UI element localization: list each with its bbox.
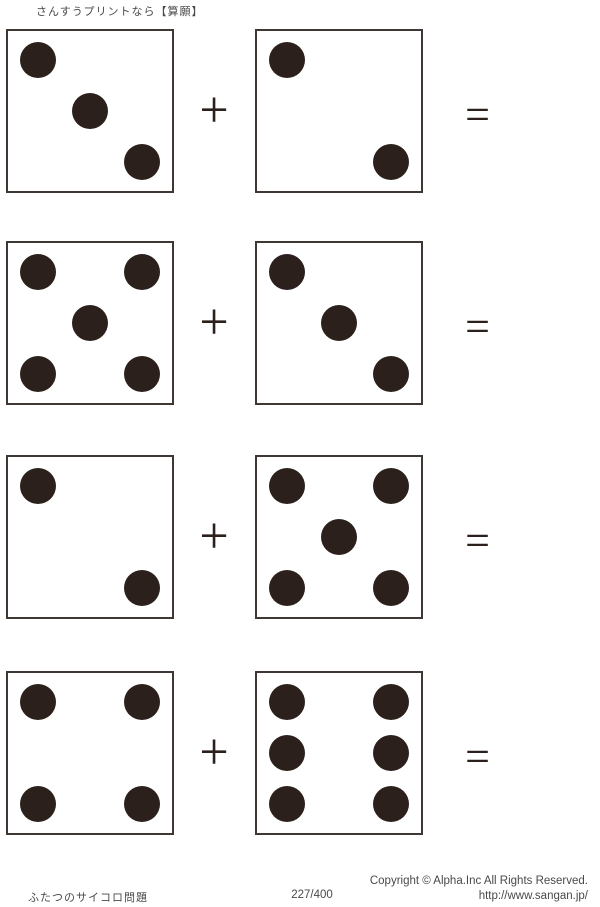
die-pip [20, 786, 56, 822]
die-pip [72, 305, 108, 341]
die-pip [124, 570, 160, 606]
worksheet-page: さんすうプリントなら【算願】 + = + = + = + = ふたつのサイコロ問… [0, 0, 600, 907]
die-pip [373, 684, 409, 720]
die-pip [20, 356, 56, 392]
die-right [255, 29, 423, 193]
die-pip [269, 570, 305, 606]
die-pip [373, 570, 409, 606]
problem-row-3: + = [0, 455, 600, 619]
die-pip [373, 735, 409, 771]
die-pip [124, 356, 160, 392]
die-pip [20, 684, 56, 720]
equals-icon: = [452, 455, 503, 619]
site-url: http://www.sangan.jp/ [370, 889, 588, 904]
die-pip [20, 42, 56, 78]
die-left [6, 241, 174, 405]
die-pip [124, 786, 160, 822]
die-pip [269, 42, 305, 78]
die-left [6, 671, 174, 835]
copyright-text: Copyright © Alpha.Inc All Rights Reserve… [370, 874, 588, 889]
die-pip [269, 735, 305, 771]
problem-row-1: + = [0, 29, 600, 193]
die-pip [124, 684, 160, 720]
die-pip [269, 468, 305, 504]
die-pip [373, 786, 409, 822]
die-pip [373, 144, 409, 180]
die-pip [20, 254, 56, 290]
footer-worksheet-title: ふたつのサイコロ問題 [28, 889, 148, 905]
die-pip [373, 356, 409, 392]
die-pip [269, 684, 305, 720]
die-pip [124, 254, 160, 290]
equals-icon: = [452, 29, 503, 193]
die-right [255, 241, 423, 405]
page-title: さんすうプリントなら【算願】 [36, 3, 204, 19]
equals-icon: = [452, 671, 503, 835]
page-number: 227/400 [267, 889, 357, 901]
die-pip [321, 305, 357, 341]
plus-icon: + [189, 455, 239, 619]
die-pip [321, 519, 357, 555]
die-pip [124, 144, 160, 180]
problem-row-2: + = [0, 241, 600, 405]
copyright-block: Copyright © Alpha.Inc All Rights Reserve… [370, 874, 588, 903]
problem-row-4: + = [0, 671, 600, 835]
die-pip [269, 254, 305, 290]
die-pip [20, 468, 56, 504]
die-left [6, 455, 174, 619]
die-left [6, 29, 174, 193]
die-pip [269, 786, 305, 822]
plus-icon: + [189, 29, 239, 193]
plus-icon: + [189, 671, 239, 835]
die-pip [373, 468, 409, 504]
equals-icon: = [452, 241, 503, 405]
die-pip [72, 93, 108, 129]
die-right [255, 455, 423, 619]
plus-icon: + [189, 241, 239, 405]
die-right [255, 671, 423, 835]
